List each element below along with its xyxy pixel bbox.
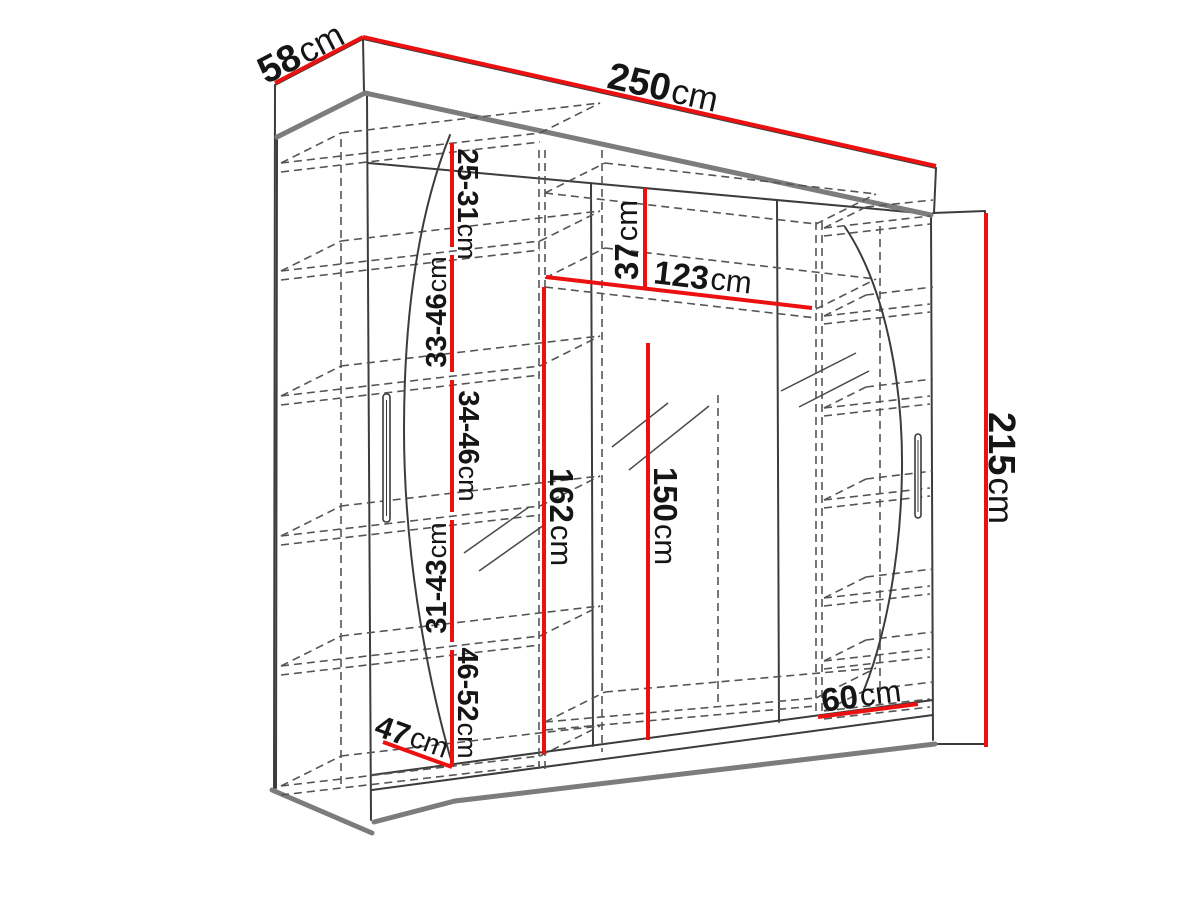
right-door-arc — [845, 227, 902, 690]
left-door-handle — [383, 394, 390, 522]
wardrobe-technical-drawing: 58cm 250cm 215cm 25-31cm 33-46cm 34-46cm… — [0, 0, 1200, 900]
label-58cm: 58cm — [251, 13, 351, 92]
left-door-arc — [404, 135, 451, 760]
label-215cm: 215cm — [980, 412, 1022, 524]
label-33-46cm: 33-46cm — [421, 256, 453, 367]
label-162cm: 162cm — [544, 468, 581, 566]
label-123cm: 123cm — [652, 253, 754, 301]
label-46-52cm: 46-52cm — [451, 647, 483, 758]
label-25-31cm: 25-31cm — [451, 148, 483, 259]
drawing-canvas: 58cm 250cm 215cm 25-31cm 33-46cm 34-46cm… — [0, 0, 1200, 900]
label-37cm: 37cm — [608, 200, 645, 280]
label-150cm: 150cm — [648, 467, 685, 565]
label-47cm: 47cm — [371, 708, 454, 767]
label-31-43cm: 31-43cm — [421, 522, 453, 633]
right-door-handle — [915, 434, 921, 518]
label-34-46cm: 34-46cm — [452, 390, 484, 501]
label-250cm: 250cm — [604, 55, 723, 120]
